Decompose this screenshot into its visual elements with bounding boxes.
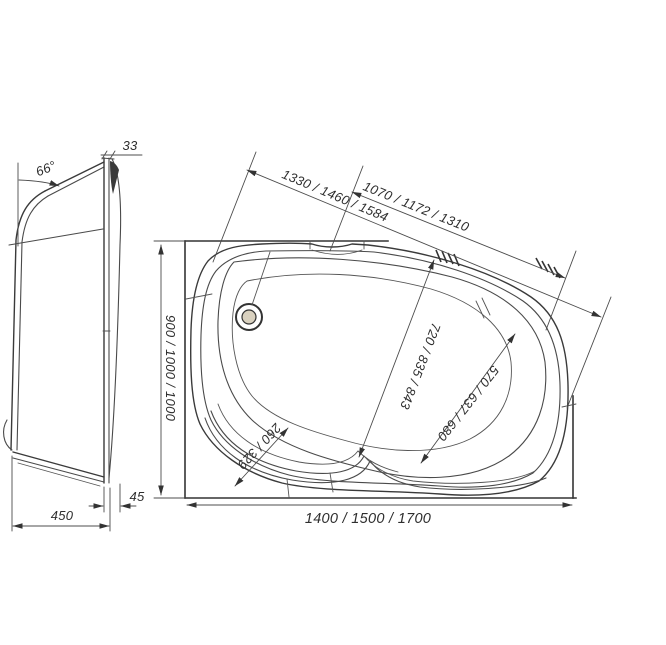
side-bottom-edge3 — [18, 463, 100, 486]
dim-45: 45 — [89, 484, 145, 512]
dim-bowl-length: 720 / 835 / 843 — [359, 260, 444, 457]
top-view: 900 / 1000 / 1000 1400 / 1500 / 1700 133… — [154, 152, 611, 527]
dim-bowl-width-label: 570 / 637 / 680 — [434, 363, 502, 445]
dim-width-overall: 900 / 1000 / 1000 — [154, 241, 185, 498]
basin-tick-1 — [476, 301, 484, 318]
dim-45-label: 45 — [129, 489, 145, 504]
dim-450: 450 — [12, 456, 110, 531]
basin-tick-2 — [482, 298, 490, 315]
dim-bowl-width: 570 / 637 / 680 — [421, 334, 515, 463]
dim-diag-inner-witness-right — [546, 251, 576, 330]
dim-length-label: 1400 / 1500 / 1700 — [305, 511, 431, 527]
angle-arc — [19, 180, 59, 186]
dim-length-overall: 1400 / 1500 / 1700 — [187, 505, 572, 527]
swoosh-tick-1 — [287, 479, 289, 497]
dim-33-label: 33 — [122, 138, 138, 153]
dim-bowl-length-label: 720 / 835 / 843 — [397, 321, 444, 412]
left-rim-tick — [186, 294, 212, 299]
dim-diag-outer-witness-right — [567, 297, 611, 408]
side-bottom-edge — [13, 452, 104, 477]
dim-width-label: 900 / 1000 / 1000 — [163, 315, 178, 422]
dim-33: 33 — [101, 138, 142, 159]
drain-hole — [242, 310, 256, 324]
frame-right-tick — [562, 404, 576, 407]
dim-diagonal-inner: 1070 / 1172 / 1310 — [330, 166, 576, 330]
drain — [236, 252, 270, 330]
side-back-edge-outer — [11, 191, 45, 450]
side-apron-curve — [109, 159, 121, 478]
side-back-edge-inner — [17, 196, 48, 450]
dim-450-label: 450 — [51, 508, 74, 523]
bathtub-drawing-svg: 66° 33 45 450 — [0, 0, 666, 645]
angle-label: 66° — [33, 158, 58, 180]
dim-angle-66: 66° — [18, 158, 59, 246]
side-view: 66° 33 45 450 — [4, 138, 145, 531]
side-bottom-edge2 — [13, 458, 104, 482]
technical-drawing: 66° 33 45 450 — [0, 0, 666, 645]
